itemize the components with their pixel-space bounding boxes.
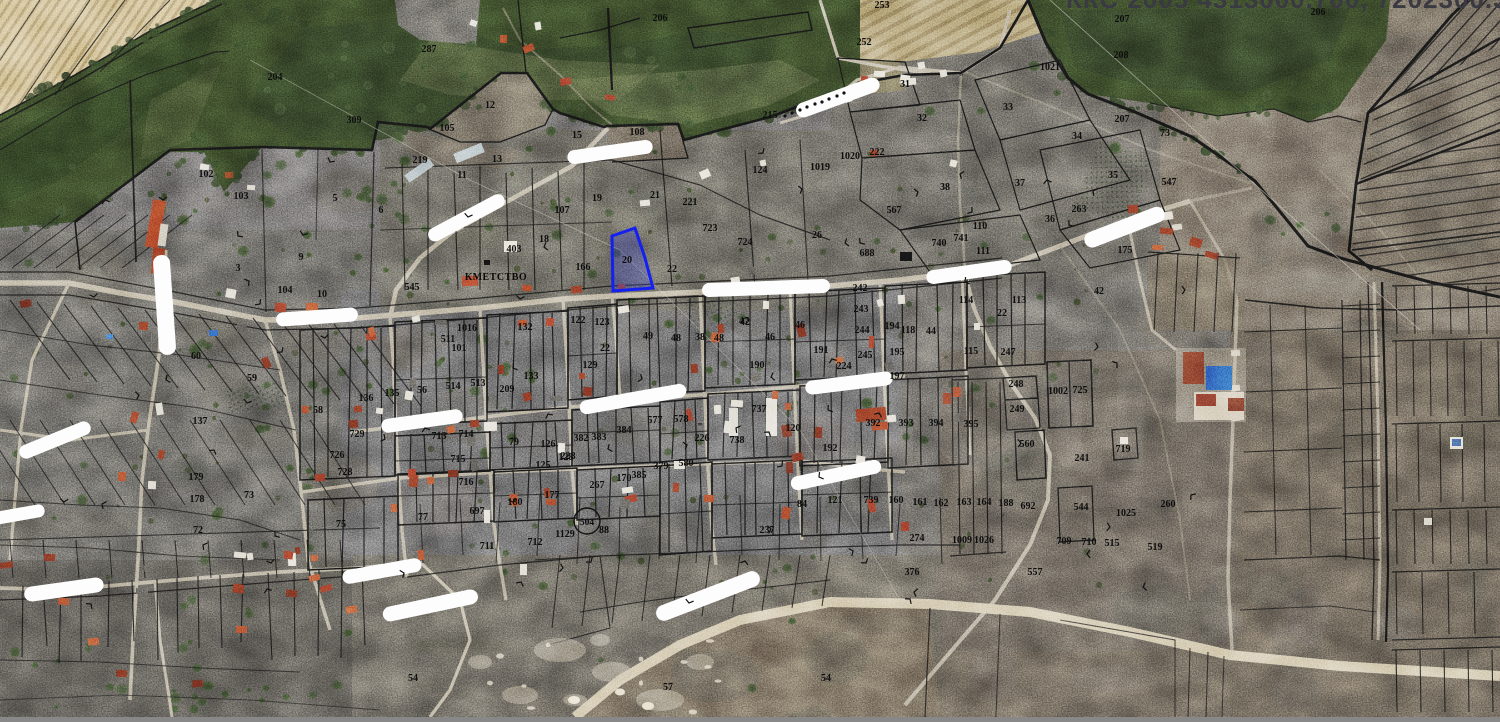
svg-text:249: 249 [1010, 404, 1025, 415]
svg-text:567: 567 [887, 205, 902, 216]
svg-text:162: 162 [934, 498, 949, 509]
svg-text:248: 248 [1009, 379, 1024, 390]
svg-text:191: 191 [814, 345, 829, 356]
svg-text:137: 137 [193, 416, 208, 427]
svg-text:740: 740 [932, 238, 947, 249]
svg-text:267: 267 [590, 480, 605, 491]
svg-text:21: 21 [650, 190, 660, 201]
svg-text:115: 115 [964, 346, 978, 357]
svg-text:102: 102 [199, 169, 214, 180]
svg-text:118: 118 [901, 325, 915, 336]
svg-text:1002: 1002 [1048, 386, 1068, 397]
svg-text:48: 48 [671, 333, 681, 344]
svg-text:49: 49 [643, 331, 653, 342]
svg-text:221: 221 [683, 197, 698, 208]
svg-text:245: 245 [858, 350, 873, 361]
svg-text:560: 560 [1020, 439, 1035, 450]
svg-text:190: 190 [750, 360, 765, 371]
svg-text:125: 125 [536, 460, 551, 471]
svg-text:711: 711 [480, 541, 494, 552]
svg-text:126: 126 [541, 439, 556, 450]
svg-text:737: 737 [752, 404, 767, 415]
svg-text:709: 709 [1057, 536, 1072, 547]
svg-text:175: 175 [1118, 245, 1133, 256]
svg-text:547: 547 [1162, 177, 1177, 188]
svg-text:124: 124 [753, 165, 768, 176]
svg-text:714: 714 [459, 429, 474, 440]
svg-text:692: 692 [1021, 501, 1036, 512]
svg-text:26: 26 [812, 230, 822, 241]
svg-text:178: 178 [190, 494, 205, 505]
svg-text:244: 244 [855, 325, 870, 336]
svg-text:11: 11 [457, 170, 466, 181]
svg-text:15: 15 [572, 130, 582, 141]
svg-text:164: 164 [977, 497, 992, 508]
svg-text:75: 75 [336, 519, 346, 530]
svg-text:712: 712 [528, 537, 543, 548]
svg-text:515: 515 [1105, 538, 1120, 549]
svg-text:111: 111 [976, 246, 990, 257]
svg-text:724: 724 [738, 237, 753, 248]
svg-text:260: 260 [1161, 499, 1176, 510]
svg-text:237: 237 [760, 525, 775, 536]
svg-text:688: 688 [860, 248, 875, 259]
svg-text:241: 241 [1075, 453, 1090, 464]
svg-text:9: 9 [299, 252, 304, 263]
svg-text:135: 135 [385, 388, 400, 399]
svg-text:5: 5 [333, 193, 338, 204]
svg-text:59: 59 [247, 373, 257, 384]
svg-text:105: 105 [440, 123, 455, 134]
svg-text:": " [697, 422, 703, 433]
svg-text:48: 48 [714, 333, 724, 344]
svg-text:13: 13 [492, 154, 502, 165]
svg-text:22: 22 [997, 308, 1007, 319]
svg-text:179: 179 [189, 472, 204, 483]
svg-text:104: 104 [278, 285, 293, 296]
svg-text:129: 129 [583, 360, 598, 371]
svg-text:242: 242 [853, 283, 868, 294]
svg-text:133: 133 [524, 371, 539, 382]
svg-text:1129: 1129 [555, 529, 574, 540]
svg-text:1009: 1009 [952, 535, 972, 546]
svg-text:46: 46 [795, 320, 805, 331]
svg-text:738: 738 [730, 435, 745, 446]
svg-text:222: 222 [870, 147, 885, 158]
svg-text:287: 287 [422, 44, 437, 55]
svg-text:197: 197 [890, 371, 905, 382]
svg-text:1025: 1025 [1116, 508, 1136, 519]
svg-text:394: 394 [929, 418, 944, 429]
svg-text:741: 741 [954, 233, 969, 244]
svg-text:132: 132 [518, 322, 533, 333]
svg-text:544: 544 [1074, 502, 1089, 513]
svg-text:180: 180 [508, 497, 523, 508]
svg-text:226: 226 [695, 433, 710, 444]
svg-text:728: 728 [338, 467, 353, 478]
svg-text:73: 73 [1160, 128, 1170, 139]
svg-text:710: 710 [1082, 537, 1097, 548]
svg-text:395: 395 [964, 419, 979, 430]
svg-text:72: 72 [193, 525, 203, 536]
svg-text:204: 204 [268, 72, 283, 83]
svg-text:253: 253 [875, 0, 890, 11]
svg-text:545: 545 [405, 282, 420, 293]
svg-text:73: 73 [244, 490, 254, 501]
svg-text:274: 274 [910, 533, 925, 544]
svg-text:42: 42 [1094, 286, 1104, 297]
svg-text:44: 44 [926, 326, 936, 337]
svg-text:247: 247 [1001, 347, 1016, 358]
svg-text:163: 163 [957, 497, 972, 508]
svg-text:729: 729 [350, 429, 365, 440]
svg-text:1026: 1026 [974, 535, 994, 546]
svg-text:385: 385 [632, 470, 647, 481]
svg-text:514: 514 [446, 381, 461, 392]
svg-text:46: 46 [765, 332, 775, 343]
svg-text:309: 309 [347, 115, 362, 126]
svg-text:1016: 1016 [457, 323, 477, 334]
svg-text:107: 107 [555, 205, 570, 216]
svg-text:578: 578 [674, 414, 689, 425]
svg-text:37: 37 [1015, 178, 1025, 189]
svg-text:121: 121 [828, 495, 843, 506]
svg-text:19: 19 [592, 193, 602, 204]
svg-text:170: 170 [617, 473, 632, 484]
svg-text:10: 10 [317, 289, 327, 300]
svg-text:219: 219 [413, 155, 428, 166]
svg-text:726: 726 [330, 450, 345, 461]
svg-text:382: 382 [574, 433, 589, 444]
svg-text:725: 725 [1073, 385, 1088, 396]
svg-text:1020: 1020 [840, 151, 860, 162]
svg-text:215: 215 [763, 110, 778, 121]
svg-text:207: 207 [1115, 14, 1130, 25]
svg-text:384: 384 [617, 425, 632, 436]
svg-text:18: 18 [539, 234, 549, 245]
svg-text:739: 739 [864, 495, 879, 506]
svg-text:376: 376 [905, 567, 920, 578]
svg-text:33: 33 [1003, 102, 1013, 113]
svg-text:34: 34 [1072, 131, 1082, 142]
svg-text:252: 252 [857, 37, 872, 48]
svg-text:715: 715 [451, 454, 466, 465]
svg-text:519: 519 [1148, 542, 1163, 553]
svg-text:166: 166 [576, 262, 591, 273]
svg-text:79: 79 [509, 437, 519, 448]
svg-text:513: 513 [471, 378, 486, 389]
svg-text:1019: 1019 [810, 162, 830, 173]
svg-text:110: 110 [973, 221, 987, 232]
svg-text:22: 22 [667, 264, 677, 275]
svg-text:122: 122 [571, 315, 586, 326]
svg-text:60: 60 [191, 351, 201, 362]
svg-text:160: 160 [889, 495, 904, 506]
svg-text:723: 723 [703, 223, 718, 234]
svg-text:114: 114 [959, 295, 973, 306]
svg-text:101: 101 [452, 343, 467, 354]
svg-text:77: 77 [418, 512, 428, 523]
svg-text:243: 243 [854, 304, 869, 315]
svg-text:393: 393 [899, 418, 914, 429]
svg-text:38: 38 [940, 182, 950, 193]
svg-text:504: 504 [580, 518, 595, 528]
svg-text:577: 577 [648, 415, 663, 426]
svg-text:161: 161 [913, 497, 928, 508]
svg-text:580: 580 [679, 458, 694, 469]
svg-text:КМЕТСТВО: КМЕТСТВО [465, 272, 527, 283]
svg-text:12: 12 [485, 100, 495, 111]
svg-text:206: 206 [653, 13, 668, 24]
svg-text:84: 84 [797, 499, 807, 510]
svg-text:713: 713 [432, 431, 447, 442]
svg-text:716: 716 [459, 477, 474, 488]
svg-text:57: 57 [663, 682, 673, 693]
svg-text:403: 403 [507, 244, 522, 255]
svg-text:31: 31 [900, 79, 910, 90]
svg-text:42: 42 [740, 317, 750, 328]
svg-text:136: 136 [359, 393, 374, 404]
svg-text:194: 194 [885, 321, 900, 332]
svg-text:557: 557 [1028, 567, 1043, 578]
svg-text:719: 719 [1116, 444, 1131, 455]
svg-text:208: 208 [1114, 50, 1129, 61]
svg-text:177: 177 [545, 490, 560, 501]
svg-text:32: 32 [917, 113, 927, 124]
svg-text:20: 20 [622, 255, 632, 266]
svg-text:ККС 2005 4313000.700, 7202300.: ККС 2005 4313000.700, 7202300.30 [1066, 0, 1500, 14]
svg-text:697: 697 [470, 506, 485, 517]
svg-text:379: 379 [654, 461, 669, 472]
svg-text:263: 263 [1072, 204, 1087, 215]
svg-text:58: 58 [313, 405, 323, 416]
svg-text:35: 35 [1108, 170, 1118, 181]
svg-text:209: 209 [500, 384, 515, 395]
svg-text:3: 3 [236, 263, 241, 274]
svg-text:113: 113 [1012, 295, 1026, 306]
svg-text:224: 224 [837, 361, 852, 372]
svg-text:123: 123 [595, 317, 610, 328]
svg-text:103: 103 [234, 191, 249, 202]
svg-text:56: 56 [417, 385, 427, 396]
svg-text:383: 383 [592, 432, 607, 443]
svg-text:195: 195 [890, 347, 905, 358]
svg-text:228: 228 [561, 451, 576, 462]
svg-text:38: 38 [695, 332, 705, 343]
svg-text:22: 22 [600, 343, 610, 354]
svg-text:54: 54 [408, 673, 418, 684]
svg-text:188: 188 [999, 498, 1014, 509]
svg-text:207: 207 [1115, 114, 1130, 125]
svg-text:120: 120 [786, 423, 801, 434]
svg-text:108: 108 [630, 127, 645, 138]
svg-text:88: 88 [599, 525, 609, 536]
svg-text:1021: 1021 [1040, 62, 1060, 73]
svg-text:36: 36 [1045, 214, 1055, 225]
svg-text:54: 54 [821, 673, 831, 684]
svg-text:6: 6 [379, 205, 384, 216]
svg-text:392: 392 [866, 418, 881, 429]
svg-text:192: 192 [823, 443, 838, 454]
